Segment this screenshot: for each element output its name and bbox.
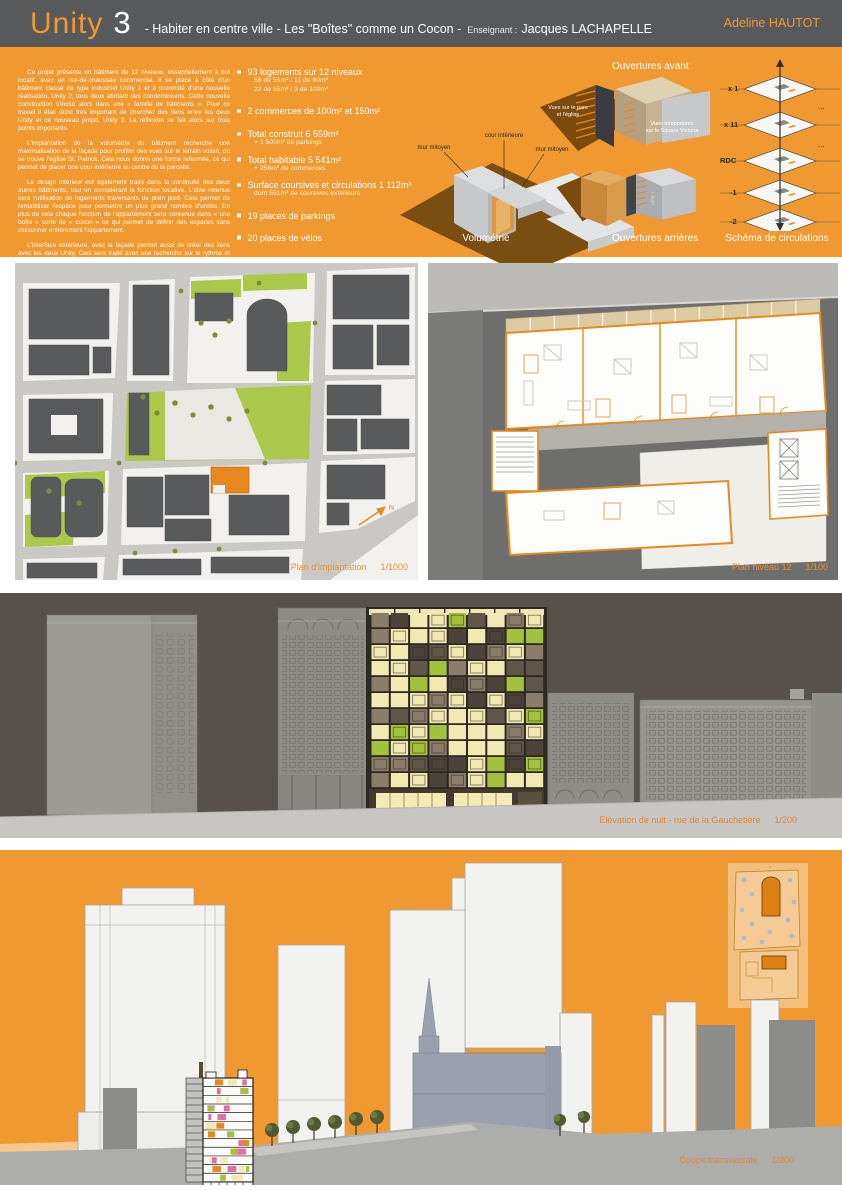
section-tower xyxy=(186,1062,253,1185)
label-unity1: Unity 1 xyxy=(650,191,655,205)
presentation-board: Unity 3 - Habiter en centre ville - Les … xyxy=(0,0,842,1191)
bullet-icon xyxy=(237,214,241,218)
bullet-icon xyxy=(237,183,241,187)
bullet-icon xyxy=(237,236,241,240)
stat-item: 93 logements sur 12 niveaux 56 de 55m² /… xyxy=(237,67,419,94)
floor-plan-drawing xyxy=(428,263,838,580)
label-vues-square-2: sur le Square Victoria xyxy=(646,128,699,134)
intro-paragraph: Ce projet présente un bâtiment de 12 niv… xyxy=(18,69,230,133)
dots-2: ... xyxy=(818,140,825,149)
label-vues-parc-2: et l'église xyxy=(557,112,580,118)
bullet-icon xyxy=(237,158,241,162)
bullet-icon xyxy=(237,132,241,136)
stats-list: 93 logements sur 12 niveaux 56 de 55m² /… xyxy=(237,67,419,250)
stat-item: Total habitable 5 541m² + 258m² de comme… xyxy=(237,155,419,174)
level-label-m1: -1 xyxy=(730,188,737,197)
intro-paragraph: L'implantation de la volumétrie du bâtim… xyxy=(18,140,230,172)
stat-item: 20 places de vélos xyxy=(237,233,419,243)
stat-item: 2 commerces de 100m² et 150m² xyxy=(237,106,419,116)
ouvertures-avant-drawing: Vues sur le parc et l'église Vues tempor… xyxy=(540,73,715,161)
info-panel: Ce projet présente un bâtiment de 12 niv… xyxy=(0,47,842,257)
site-plan-drawing: N xyxy=(15,263,418,580)
level-label-m2: -2 xyxy=(730,217,737,226)
section-drawing xyxy=(0,850,842,1185)
site-plan-panel: N Plan d'implantation1/1000 xyxy=(15,263,418,580)
floor-plan-caption: Plan niveau 121/100 xyxy=(732,562,828,572)
label-vues-square-1: Vues temporaires xyxy=(651,121,694,127)
stat-item: Total construit 6 559m² + 1 500m² de par… xyxy=(237,129,419,148)
dots-1: ... xyxy=(818,102,825,111)
ouvertures-arrieres-caption: Ouvertures arrières xyxy=(612,233,698,244)
label-vues-parc-1: Vues sur le parc xyxy=(548,105,588,111)
teacher-label: Enseignant : xyxy=(467,25,517,35)
label-cour-interieure: cour intérieure xyxy=(485,133,524,139)
elevation-caption: Elévation de nuit - rue de la Gauchetièr… xyxy=(599,815,797,825)
elevation-drawing xyxy=(0,593,842,838)
stat-item: 19 places de parkings xyxy=(237,211,419,221)
project-subtitle: - Habiter en centre ville - Les "Boîtes"… xyxy=(145,22,462,36)
north-label: N xyxy=(389,505,394,512)
project-number: 3 xyxy=(113,5,130,41)
circulations-caption: Schéma de circulations xyxy=(712,233,842,244)
site-plan-caption: Plan d'implantation1/1000 xyxy=(291,562,408,572)
stat-item: Surface coursives et circulations 1 112m… xyxy=(237,180,419,199)
key-map-inset xyxy=(728,863,808,1008)
teacher-name: Jacques LACHAPELLE xyxy=(521,22,652,36)
project-title: Unity xyxy=(30,0,103,47)
bullet-icon xyxy=(237,109,241,113)
level-label-x1: x 1 xyxy=(728,84,738,93)
level-label-rdc: RDC xyxy=(720,156,737,165)
bullet-icon xyxy=(237,70,241,74)
label-mur-mitoyen-left: mur mitoyen xyxy=(417,145,450,151)
author-name: Adeline HAUTOT xyxy=(724,0,820,47)
intro-paragraph: Le design intérieur est également traité… xyxy=(18,179,230,235)
ouvertures-arrieres-drawing: Unity 1 xyxy=(540,163,715,231)
level-label-x11: x 11 xyxy=(724,120,738,129)
elevation-band: Elévation de nuit - rue de la Gauchetièr… xyxy=(0,593,842,838)
volumetrie-caption: Volumétrie xyxy=(396,233,576,244)
section-band: Coupe transversale1/200 xyxy=(0,850,842,1185)
circulations-drawing: x 1 x 11 RDC -1 -2 ... ... xyxy=(712,59,842,231)
section-caption: Coupe transversale1/200 xyxy=(679,1155,794,1165)
ouvertures-avant-caption: Ouvertures avant xyxy=(612,61,689,72)
floor-plan-panel: Plan niveau 121/100 xyxy=(428,263,838,580)
header: Unity 3 - Habiter en centre ville - Les … xyxy=(0,0,842,47)
